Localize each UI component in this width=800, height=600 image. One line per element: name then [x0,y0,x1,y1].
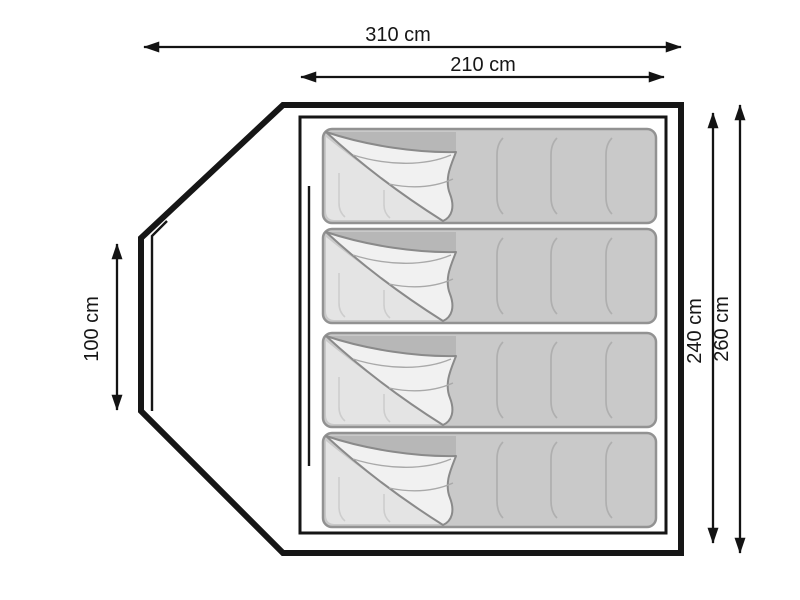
tent-dimension-diagram: 310 cm 210 cm 100 cm 240 cm 260 cm [0,0,800,600]
dimension-label-total-depth: 260 cm [711,296,733,362]
sleeping-bag-2 [323,229,656,323]
dimension-label-inner-depth: 240 cm [684,298,706,364]
sleeping-bag-4 [323,433,656,527]
dimension-label-side-height: 100 cm [81,296,103,362]
dimension-label-inner-width: 210 cm [450,54,516,76]
dimension-inner-depth: 240 cm [684,113,713,543]
dimension-total-width: 310 cm [144,24,681,47]
dimension-label-total-width: 310 cm [365,24,431,46]
sleeping-bag-3 [323,333,656,427]
dimension-side-height: 100 cm [81,244,117,410]
dimension-inner-width: 210 cm [301,54,664,77]
sleeping-bag-1 [323,129,656,223]
dimension-total-depth: 260 cm [711,105,740,553]
